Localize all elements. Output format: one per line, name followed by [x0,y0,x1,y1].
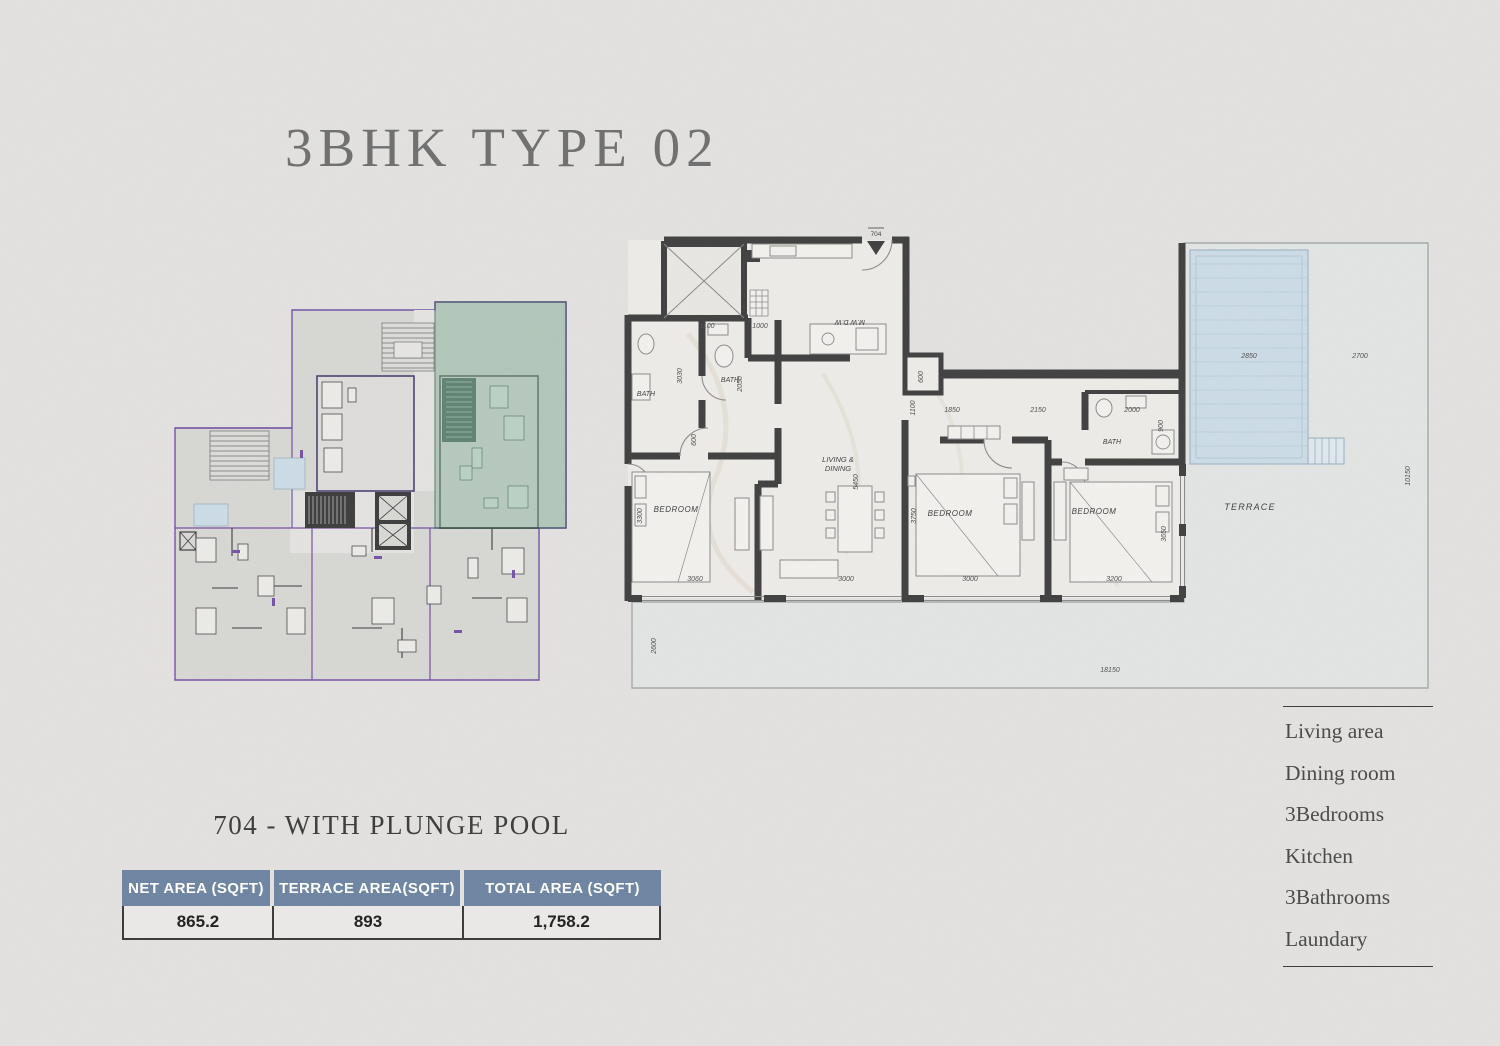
dim-label: 2150 [1029,407,1046,414]
area-table-header-net: NET AREA (SQFT) [122,870,270,906]
living-label-line2: DINING [825,464,851,473]
dim-label: 2000 [1123,407,1140,414]
kitchen-appliances-label: M.W D.W [834,318,865,325]
dim-label: 2850 [1240,353,1257,360]
living-label-line1: LIVING & [822,455,854,464]
dim-label: 2600 [651,638,658,655]
dim-label: 18150 [1100,667,1120,674]
bath3-label: BATH [1103,439,1122,446]
net-area-value: 865.2 [124,906,274,938]
legend-item-living-area: Living area [1285,719,1433,744]
room-legend: Living area Dining room 3Bedrooms Kitche… [1283,706,1433,967]
bed-bedroom1 [632,472,710,582]
page-title: 3BHK TYPE 02 [285,116,720,179]
dim-label: 3030 [677,368,684,384]
dim-label: 900 [1158,420,1165,432]
bedroom2-label: BEDROOM [928,509,973,518]
legend-item-kitchen: Kitchen [1285,844,1433,869]
dim-label: 2050 [737,376,744,393]
bedroom1-label: BEDROOM [654,505,699,514]
dim-label: 1850 [944,407,960,414]
legend-item-bedrooms: 3Bedrooms [1285,802,1433,827]
unit-subtitle: 704 - WITH PLUNGE POOL [213,810,569,840]
main-floor-plan: 704 [618,224,1438,694]
area-table-header-terrace: TERRACE AREA(SQFT) [274,870,460,906]
bath1-label: BATH [637,391,656,398]
dim-label: 3000 [962,576,978,583]
dim-label: 1100 [699,323,714,330]
key-plan [172,298,592,683]
dim-label: 2700 [1351,353,1368,360]
entry-label: 704 [871,231,882,238]
legend-bottom-divider [1283,966,1433,967]
total-area-value: 1,758.2 [464,906,659,938]
legend-item-dining-room: Dining room [1285,761,1433,786]
dim-label: 3300 [637,508,644,524]
dim-label: 3200 [1106,576,1122,583]
dim-label: 5450 [853,474,860,490]
legend-item-laundry: Laundary [1285,927,1433,952]
dim-label: 1000 [752,323,768,330]
dim-label: 3060 [687,576,703,583]
dim-label: 3650 [1161,526,1168,542]
terrace-label: TERRACE [1224,502,1275,512]
dim-label: 600 [691,434,698,446]
area-table-header-row: NET AREA (SQFT) TERRACE AREA(SQFT) TOTAL… [122,870,661,906]
legend-item-bathrooms: 3Bathrooms [1285,885,1433,910]
bed-bedroom3 [1070,482,1172,582]
dim-label: 600 [918,371,925,383]
dim-label: 1100 [910,400,917,415]
dim-label: 3000 [838,576,854,583]
keyplan-highlighted-unit [435,302,566,528]
terrace-area-value: 893 [274,906,464,938]
bedroom3-label: BEDROOM [1072,507,1117,516]
dim-label: 3750 [911,508,918,524]
area-table-header-total: TOTAL AREA (SQFT) [464,870,661,906]
bed-bedroom2 [908,474,1020,576]
area-table: NET AREA (SQFT) TERRACE AREA(SQFT) TOTAL… [122,870,661,940]
keyplan-building [175,302,566,680]
area-table-value-row: 865.2 893 1,758.2 [122,906,661,940]
dim-label: 10150 [1405,466,1412,486]
